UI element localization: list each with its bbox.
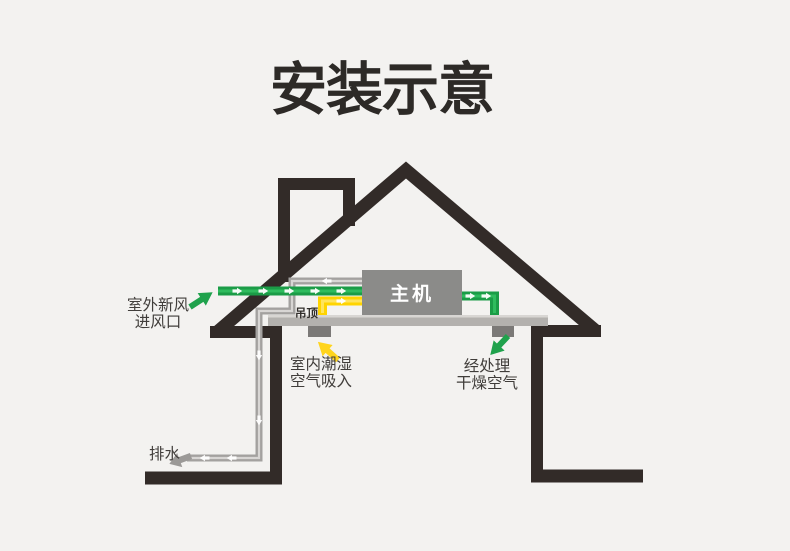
house-outline [145, 170, 643, 484]
dry-air-label-line2: 干燥空气 [442, 375, 532, 392]
dry-air-label: 经处理 干燥空气 [442, 358, 532, 391]
installation-diagram: 安装示意 主机 吊顶 室外新风 进风口 室内潮湿 空气吸入 经处理 干燥空气 排… [0, 0, 790, 551]
diagram-title: 安装示意 [270, 44, 494, 126]
indoor-air-label-line1: 室内潮湿 [276, 356, 366, 373]
main-unit-label: 主机 [362, 270, 462, 315]
intake-vent [308, 326, 331, 337]
fresh-air-label-line2: 进风口 [112, 314, 204, 331]
fresh-air-label: 室外新风 进风口 [112, 297, 204, 330]
outlet-vent [492, 326, 514, 337]
dry-air-duct [462, 296, 495, 315]
ceiling-label: 吊顶 [295, 305, 318, 321]
indoor-air-label: 室内潮湿 空气吸入 [276, 356, 366, 389]
fresh-air-label-line1: 室外新风 [112, 297, 204, 314]
drain-label: 排水 [149, 446, 189, 463]
dry-air-label-line1: 经处理 [442, 358, 532, 375]
indoor-air-label-line2: 空气吸入 [276, 373, 366, 390]
